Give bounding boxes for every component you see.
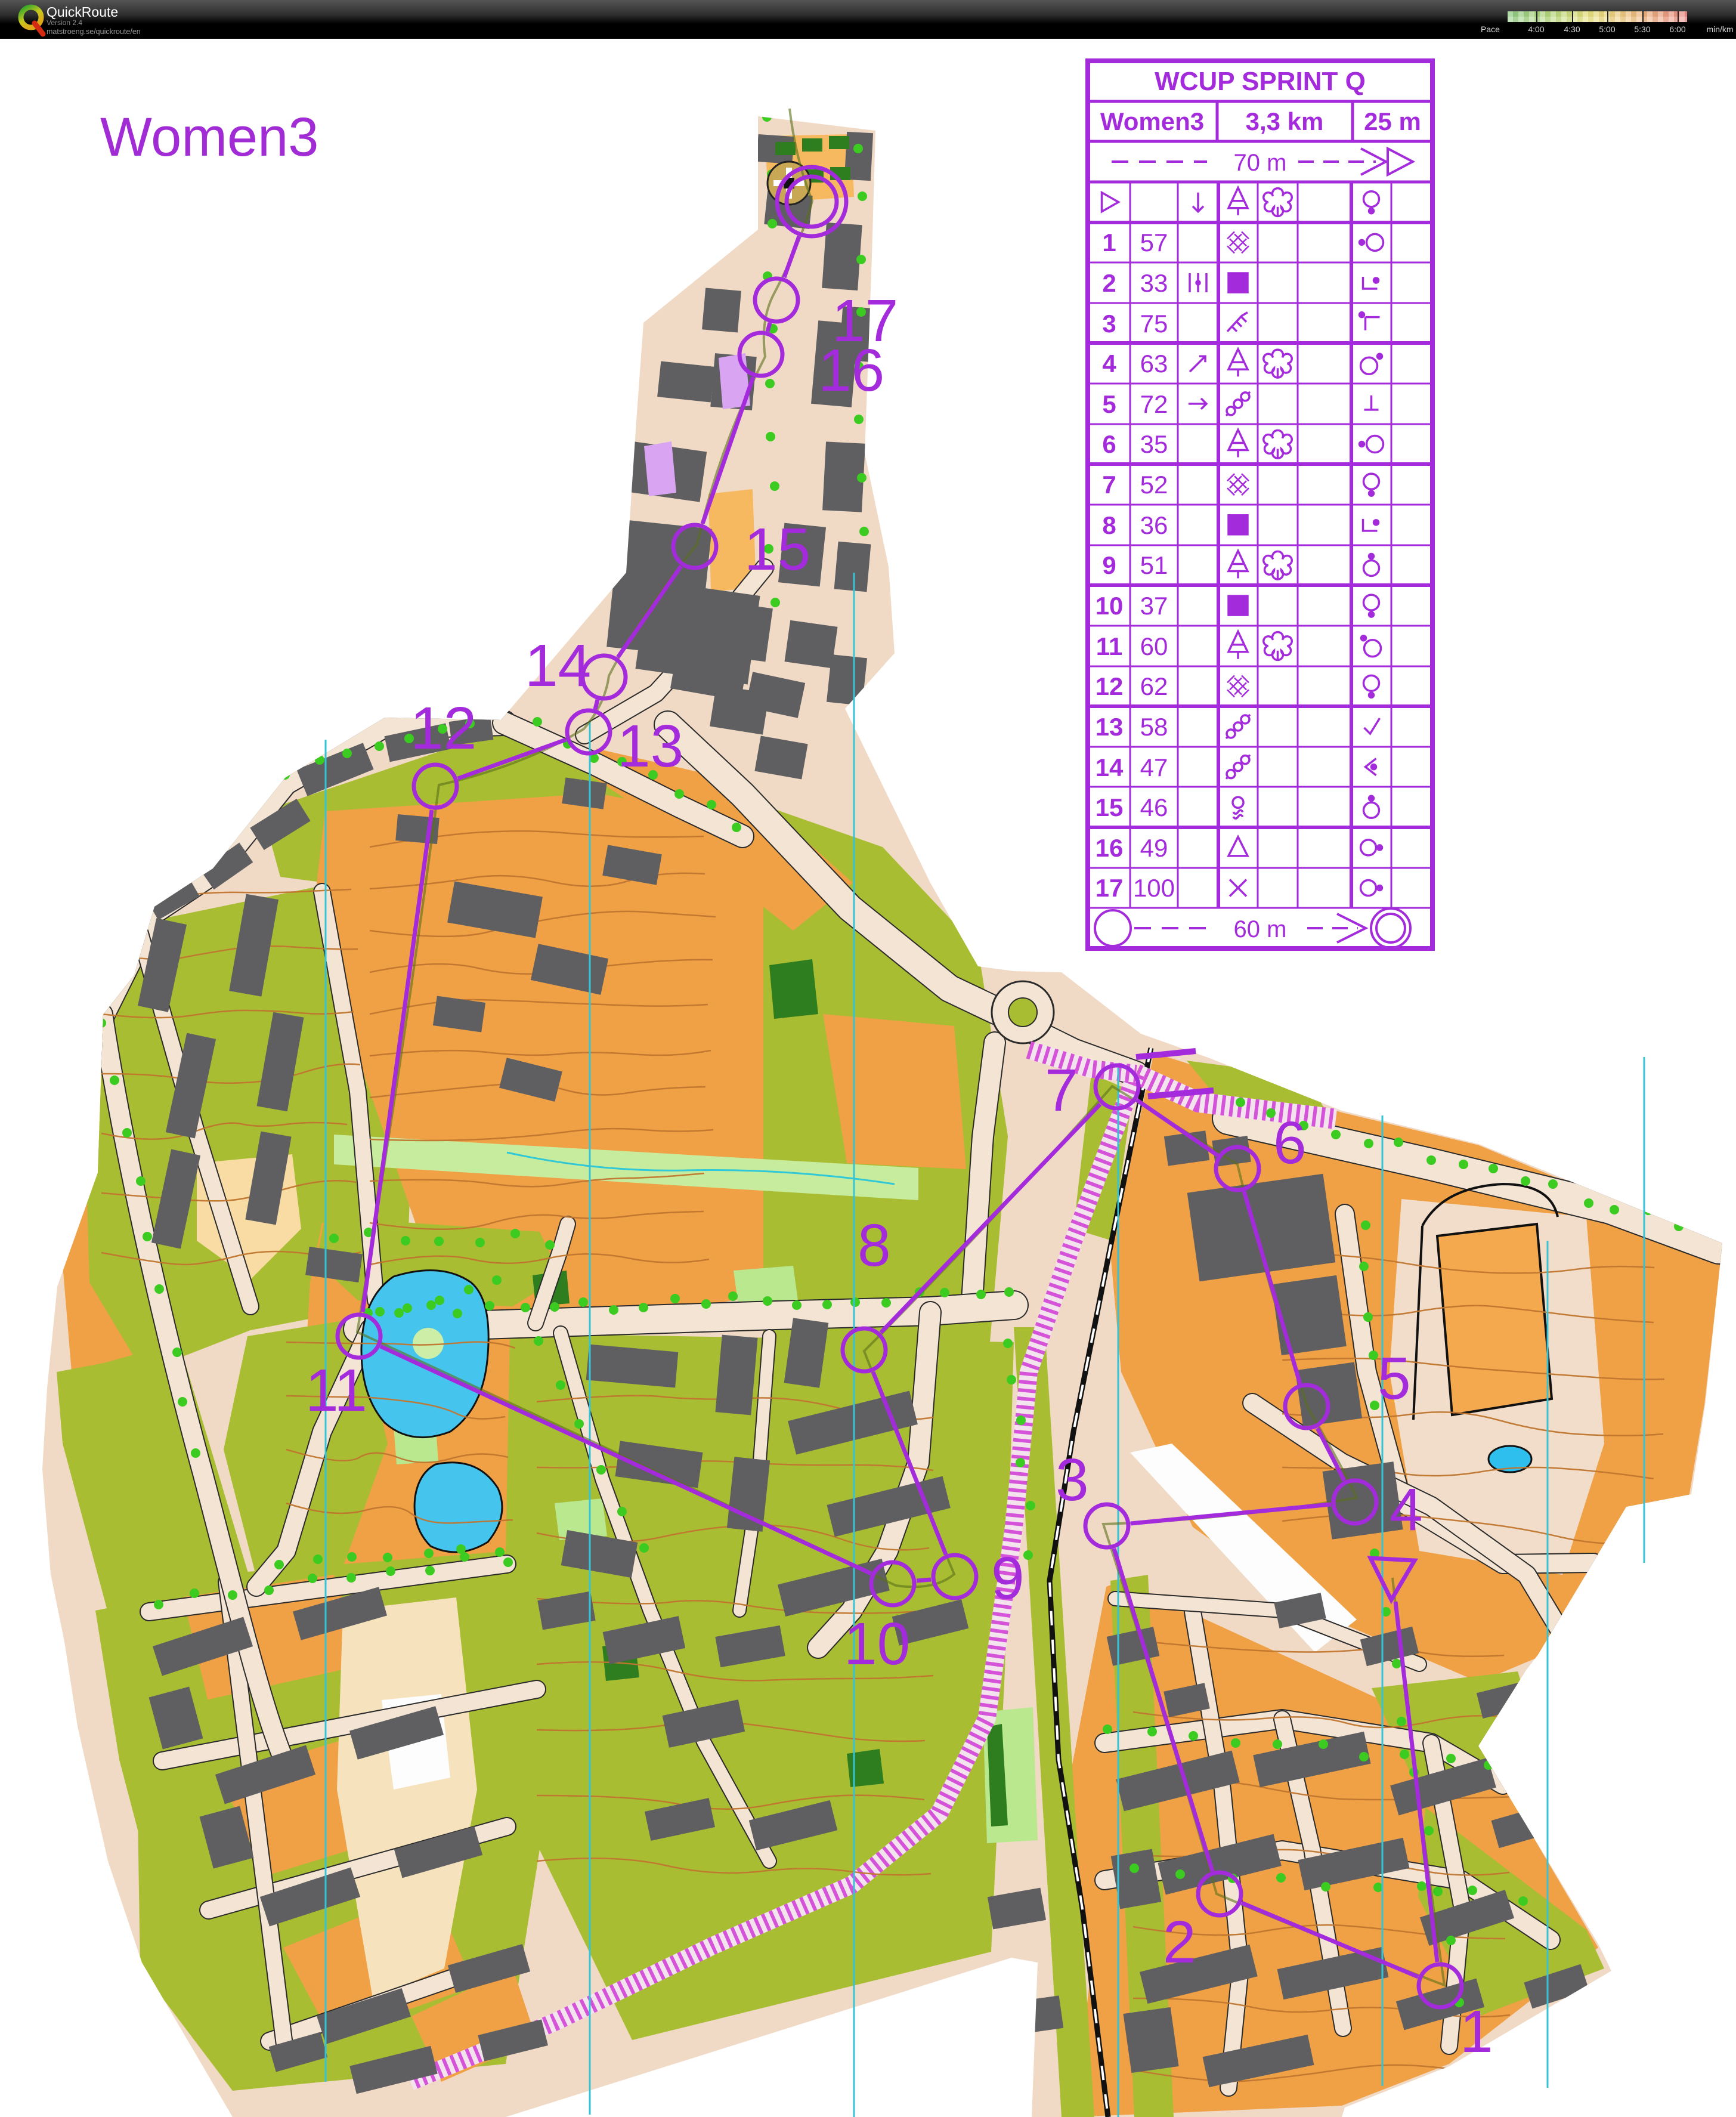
svg-text:70 m: 70 m (1234, 150, 1287, 176)
svg-text:8: 8 (1102, 511, 1116, 539)
svg-text:58: 58 (1140, 713, 1168, 741)
svg-text:9: 9 (1102, 551, 1116, 579)
svg-text:49: 49 (1140, 834, 1168, 862)
svg-text:6: 6 (1102, 430, 1116, 458)
svg-text:33: 33 (1140, 269, 1168, 297)
svg-text:4: 4 (1102, 350, 1116, 378)
svg-text:10: 10 (1096, 592, 1124, 620)
svg-text:16: 16 (1096, 834, 1124, 862)
svg-text:14: 14 (1096, 753, 1124, 781)
svg-text:25 m: 25 m (1364, 107, 1421, 135)
svg-text:3,3 km: 3,3 km (1246, 107, 1324, 135)
svg-text:51: 51 (1140, 551, 1168, 579)
svg-text:57: 57 (1140, 228, 1168, 256)
svg-text:100: 100 (1133, 874, 1175, 902)
svg-text:11: 11 (1096, 632, 1122, 660)
svg-text:36: 36 (1140, 511, 1168, 539)
svg-text:60: 60 (1140, 632, 1168, 660)
svg-text:WCUP SPRINT Q: WCUP SPRINT Q (1155, 67, 1366, 96)
svg-text:63: 63 (1140, 350, 1168, 378)
svg-text:15: 15 (1096, 793, 1124, 821)
svg-text:52: 52 (1140, 471, 1168, 499)
svg-text:60 m: 60 m (1234, 916, 1287, 942)
svg-text:37: 37 (1140, 592, 1168, 620)
svg-text:5: 5 (1102, 390, 1116, 418)
svg-text:3: 3 (1102, 310, 1116, 338)
svg-text:75: 75 (1140, 310, 1168, 338)
svg-text:2: 2 (1102, 269, 1116, 297)
svg-text:13: 13 (1096, 713, 1124, 741)
svg-text:Women3: Women3 (1100, 107, 1204, 135)
svg-text:1: 1 (1102, 228, 1116, 256)
svg-text:47: 47 (1140, 753, 1168, 781)
svg-text:35: 35 (1140, 430, 1168, 458)
svg-text:72: 72 (1140, 390, 1168, 418)
svg-text:62: 62 (1140, 672, 1168, 700)
svg-text:12: 12 (1096, 672, 1124, 700)
svg-text:7: 7 (1102, 471, 1116, 499)
svg-text:17: 17 (1096, 874, 1124, 902)
svg-text:46: 46 (1140, 793, 1168, 821)
